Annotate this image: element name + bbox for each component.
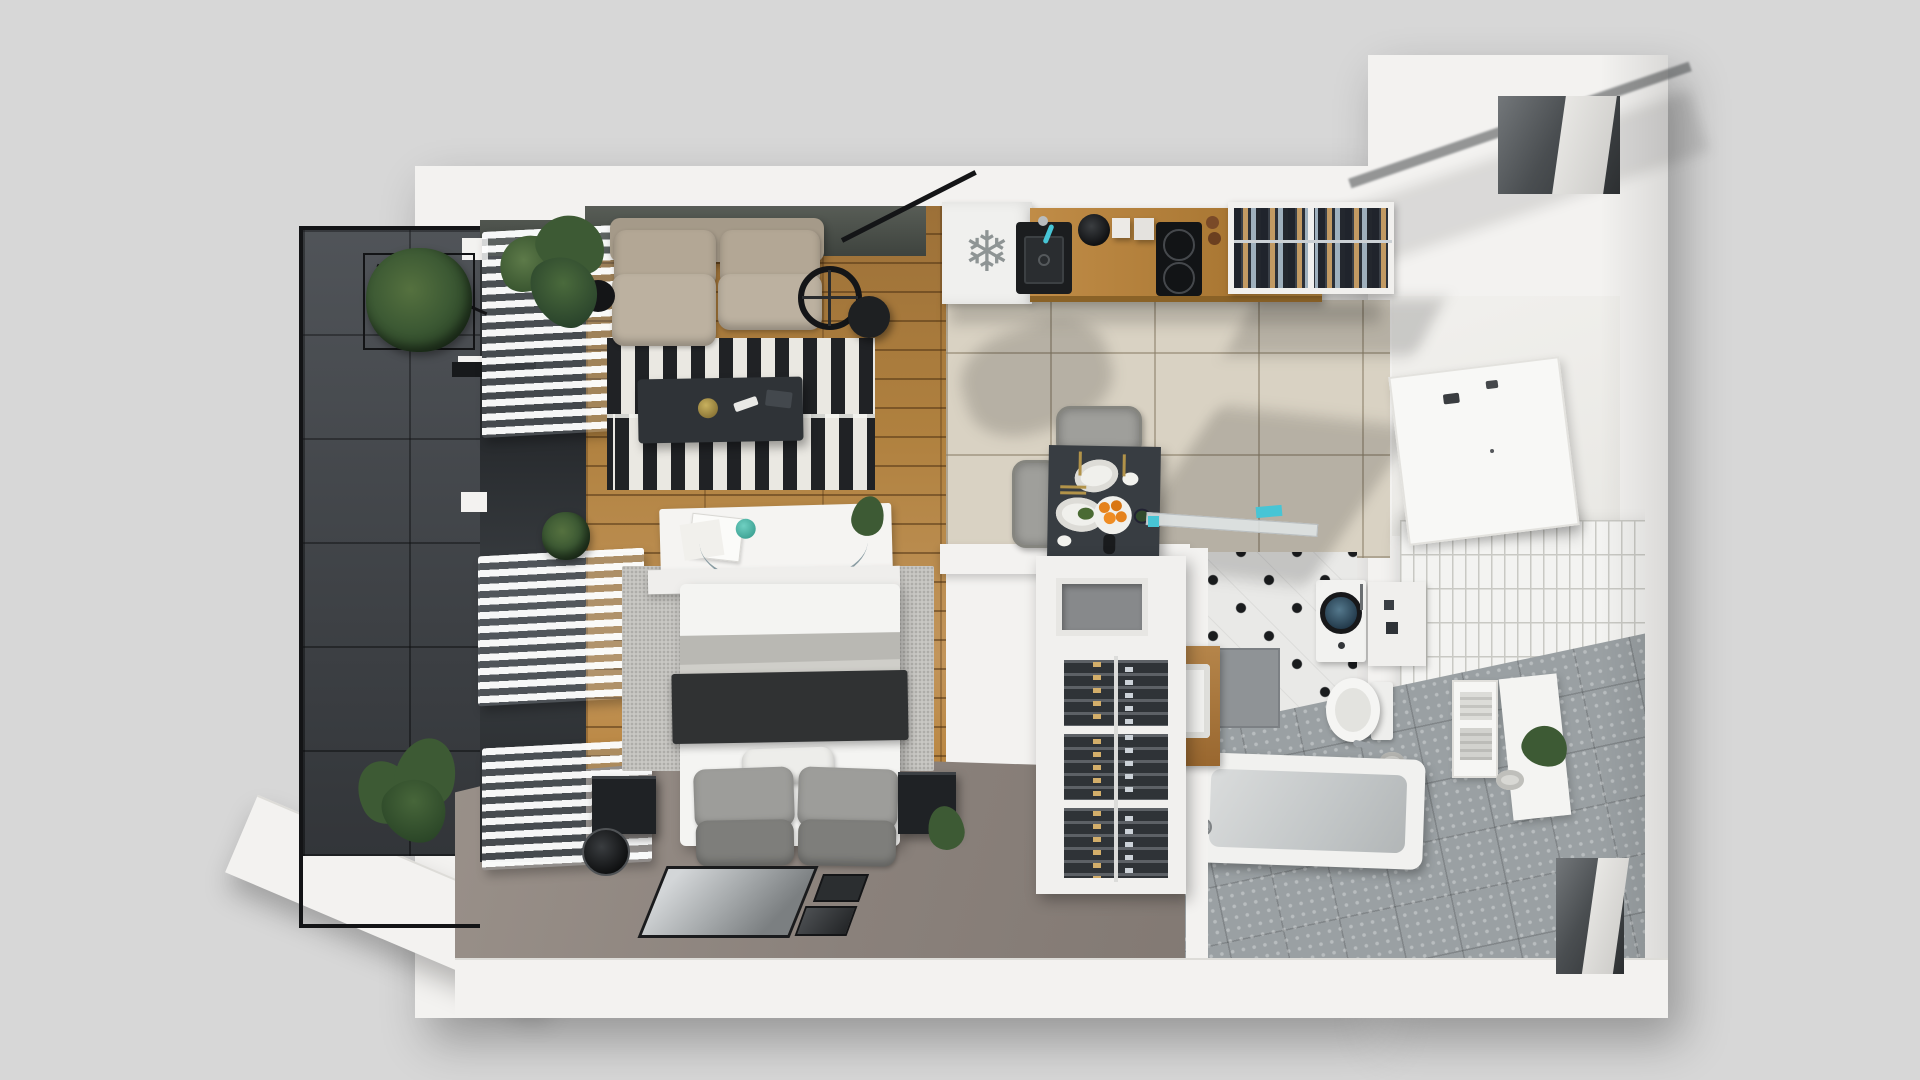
wall-top [415,166,1368,206]
cutlery-gold [1060,491,1086,494]
grinder-1 [1206,216,1219,229]
washer-side-cabinet [1368,582,1426,666]
small-palm-plant [542,512,590,560]
sofa-seat-left [612,274,716,346]
cutlery-gold [1078,452,1081,476]
snowflake-icon: ❄ [964,225,1011,281]
balcony-fiddle-plant [352,732,470,850]
faucet [1038,216,1048,226]
bed-pillow-gray-4 [798,819,897,867]
burner-2 [1163,262,1195,294]
wall-panel [1388,356,1579,546]
blinds-group-middle [478,548,644,707]
wardrobe-shadow [1225,298,1446,356]
niche-bottom-right [1556,858,1624,974]
wardrobe-section-left [1234,208,1308,288]
panel-keyhole [1490,449,1494,453]
washer-slot [1360,584,1363,610]
wardrobe-section-right [1314,208,1388,288]
washing-machine [1316,580,1366,662]
washer-button [1338,642,1345,649]
side-box-left [592,776,656,834]
wardrobe-rail [1234,240,1392,243]
orange [1116,511,1127,522]
cabinet-button-2 [1386,622,1398,634]
window-frame-stub [461,492,487,512]
orange-fruit-plate [1093,496,1132,535]
cup-2 [1057,535,1071,546]
decor-book [765,389,793,408]
wardrobe [1228,202,1394,294]
washer-door-ring [1320,592,1362,634]
sink-drain [1038,254,1050,266]
palm-plant [494,214,614,330]
shower-drain [1216,648,1280,728]
desk-teal-dish [735,519,756,540]
toilet-paper-roll-2 [1496,770,1524,790]
niche-light-face [1582,858,1630,974]
panel-hook-1 [1443,393,1460,405]
utensil-holder [1078,214,1110,246]
cutlery-gold [1060,485,1086,488]
bathtub [1190,752,1426,870]
kitchen-sink [1016,222,1072,294]
bed [680,584,900,846]
orange [1111,500,1122,511]
cooktop [1156,222,1202,296]
wheel-spoke [802,296,858,299]
towel-hook-teal [1256,505,1283,518]
toilet-seat-inner [1335,688,1371,732]
canister-1 [1112,218,1130,238]
orange [1104,512,1116,524]
burner-1 [1163,229,1195,261]
towel-stack-1 [1460,692,1492,720]
towel-shelf [1452,680,1498,778]
bed-throw-dark [671,670,908,744]
panel-hook-2 [1486,380,1499,389]
greens-garnish [1078,508,1094,520]
coffee-table [637,377,803,444]
glass-clamp-teal [1148,516,1159,527]
niche-light-face [1552,96,1617,194]
towel-stack-2 [1460,728,1492,760]
round-speaker [582,828,630,876]
bathtub-basin [1209,769,1408,854]
pepper-grinder [1103,534,1115,554]
arc-lamp-base [848,296,890,338]
canister-2 [1134,218,1154,240]
dining-table [1047,445,1161,559]
wall-bottom [455,958,1668,1018]
floor-frame-small-2 [795,906,858,936]
cutlery-gold [1122,454,1125,476]
balcony-bush-plant [366,248,472,352]
wine-rack-top-box [1056,578,1148,636]
floor-frame-large [637,866,818,938]
decor-remote [733,396,759,412]
floor-plan-render: ❄ [0,0,1920,1080]
sofa [610,218,824,346]
decor-bowl-gold [698,398,718,418]
bed-pillow-gray-3 [696,819,795,867]
grinder-2 [1208,232,1221,245]
wine-rack-unit [1036,556,1186,894]
cabinet-button-1 [1384,600,1394,610]
entry-niche-top-right [1498,96,1620,194]
wine-rack-pole [1114,656,1118,882]
toilet-bowl [1326,678,1380,742]
